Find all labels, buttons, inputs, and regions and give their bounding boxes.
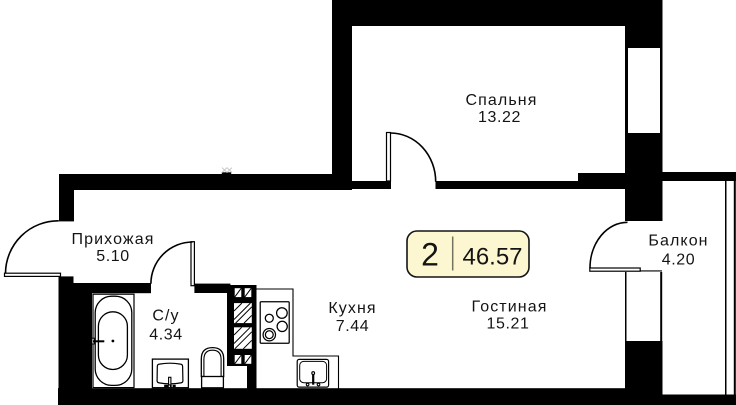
svg-text:Спальня: Спальня bbox=[466, 92, 538, 109]
svg-text:2: 2 bbox=[421, 237, 439, 273]
svg-text:Кухня: Кухня bbox=[328, 300, 376, 317]
svg-text:15.21: 15.21 bbox=[486, 316, 529, 333]
svg-text:4.20: 4.20 bbox=[662, 252, 696, 269]
svg-text:Балкон: Балкон bbox=[648, 233, 708, 250]
svg-text:46.57: 46.57 bbox=[462, 244, 522, 271]
svg-text:4.34: 4.34 bbox=[149, 327, 183, 344]
svg-text:Прихожая: Прихожая bbox=[72, 231, 155, 248]
svg-text:7.44: 7.44 bbox=[336, 318, 370, 335]
svg-text:13.22: 13.22 bbox=[478, 109, 521, 126]
svg-text:Гостиная: Гостиная bbox=[472, 299, 548, 316]
svg-text:С/у: С/у bbox=[152, 308, 179, 325]
svg-text:5.10: 5.10 bbox=[96, 248, 130, 265]
